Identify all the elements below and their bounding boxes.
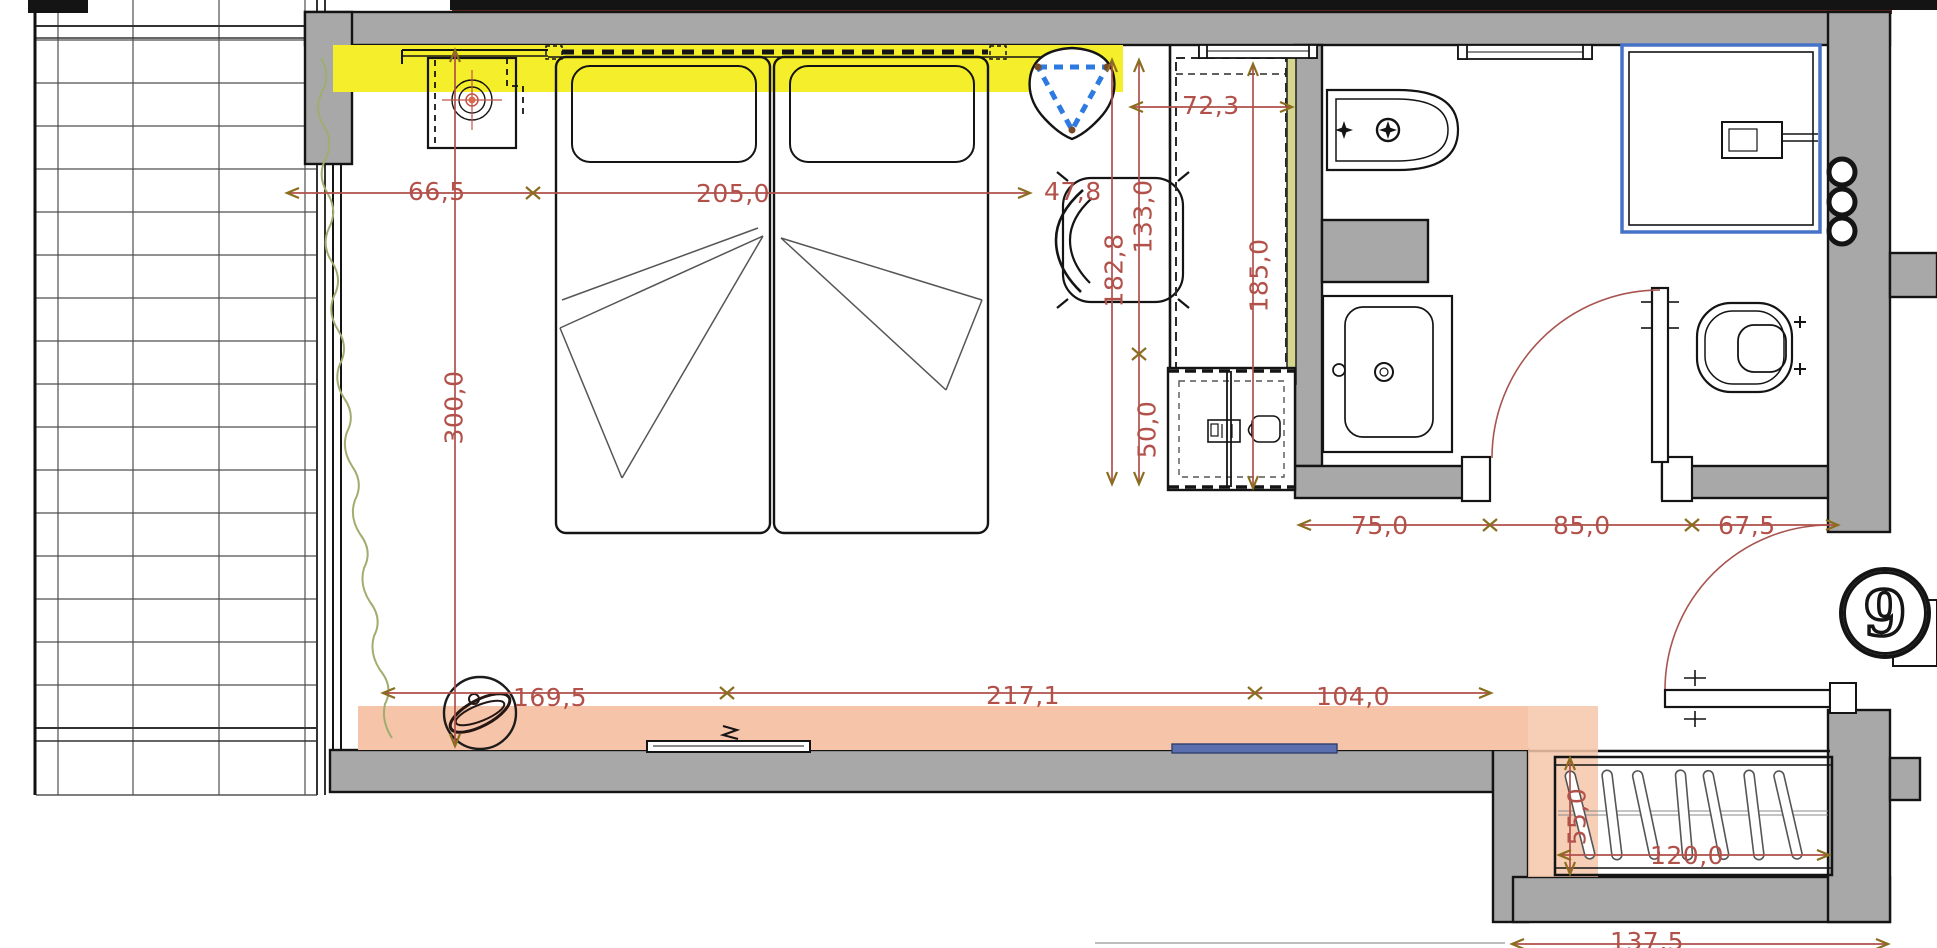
hanging-chair-icon	[1030, 48, 1115, 139]
room-number-ring: 9	[1843, 571, 1927, 655]
washbasin-icon	[1323, 296, 1452, 452]
towel-rail-icon	[1199, 45, 1592, 59]
towel-rings-icon	[1829, 159, 1855, 244]
dim-alcove-full-depth: 185,0	[1247, 226, 1272, 326]
balcony-tiles-icon	[28, 0, 325, 795]
dim-alcove-upper: 133,0	[1131, 167, 1156, 267]
dim-window-wall-b: 217,1	[986, 683, 1060, 708]
dim-bath-sink: 75,0	[1351, 513, 1409, 538]
mirror-icon	[1287, 47, 1296, 384]
dim-window-wall-a: 169,5	[513, 685, 587, 710]
floorplan-canvas: 47,8	[0, 0, 1937, 948]
dim-closet-depth: 55,0	[1565, 767, 1590, 867]
dim-bed-to-alcove: 47,8	[1044, 179, 1102, 204]
floorplan-drawing	[0, 0, 1937, 948]
dim-beds-width: 205,0	[696, 181, 770, 206]
dim-alcove-width: 72,3	[1182, 93, 1240, 118]
dim-alcove-total: 182,8	[1102, 221, 1127, 321]
dim-bath-door: 85,0	[1553, 513, 1611, 538]
door-swing-icon	[1462, 288, 1692, 501]
bidet-icon	[1327, 90, 1458, 170]
toilet-icon	[1697, 303, 1806, 392]
minibar-safe-icon	[1168, 368, 1295, 490]
radiator-icon	[1172, 744, 1337, 753]
window-glazing	[333, 164, 341, 750]
entrance-door-icon	[1665, 525, 1856, 727]
orange-highlight	[358, 706, 1528, 750]
dim-room-depth: 300,0	[442, 358, 467, 458]
dim-wall-to-bed: 66,5	[408, 179, 466, 204]
room-number: 9	[1863, 577, 1906, 650]
dim-minibar-depth: 50,0	[1135, 380, 1160, 480]
dim-window-wall-c: 104,0	[1316, 684, 1390, 709]
dim-bath-toilet: 67,5	[1718, 513, 1776, 538]
twin-beds-icon	[556, 57, 988, 533]
room-number-badge: 9	[1839, 567, 1931, 659]
shower-enclosure-icon	[1622, 45, 1820, 232]
dim-closet-width: 120,0	[1650, 843, 1724, 868]
dim-entry-wall: 137,5	[1610, 929, 1684, 948]
